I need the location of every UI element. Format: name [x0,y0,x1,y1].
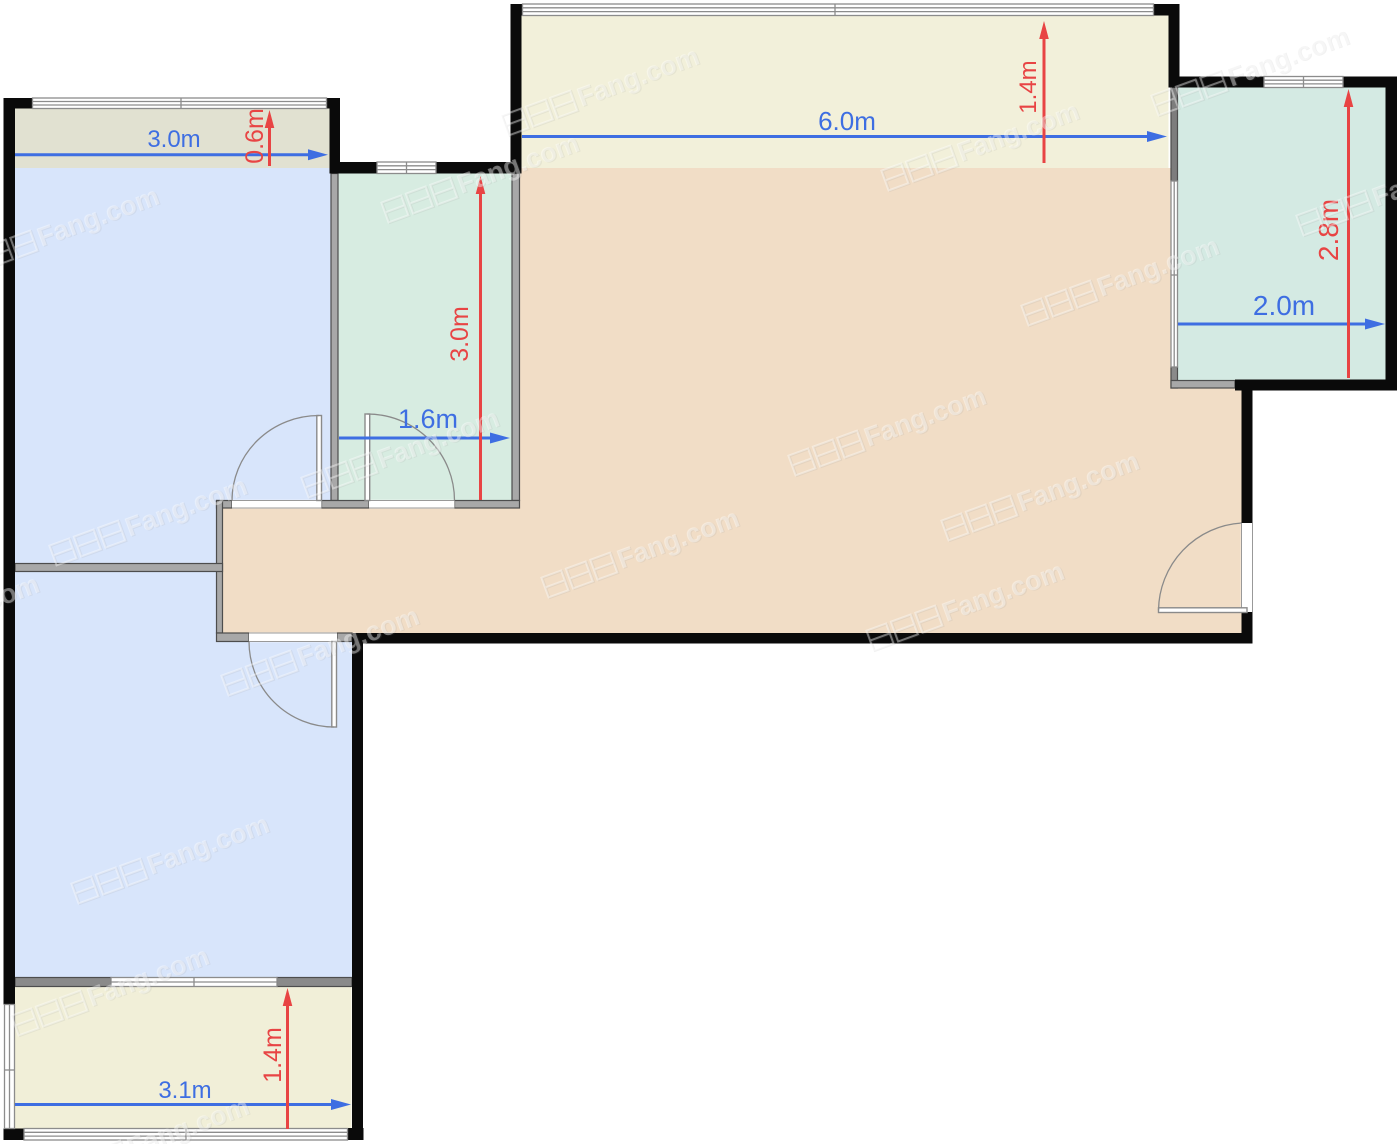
svg-text:2.0m: 2.0m [1253,290,1315,321]
svg-text:1.4m: 1.4m [259,1027,287,1083]
svg-text:0.6m: 0.6m [241,108,269,164]
svg-text:3.1m: 3.1m [158,1077,211,1104]
svg-text:6.0m: 6.0m [818,106,876,136]
svg-text:1.4m: 1.4m [1015,60,1042,113]
svg-text:3.0m: 3.0m [446,306,474,362]
svg-text:3.0m: 3.0m [147,126,200,153]
